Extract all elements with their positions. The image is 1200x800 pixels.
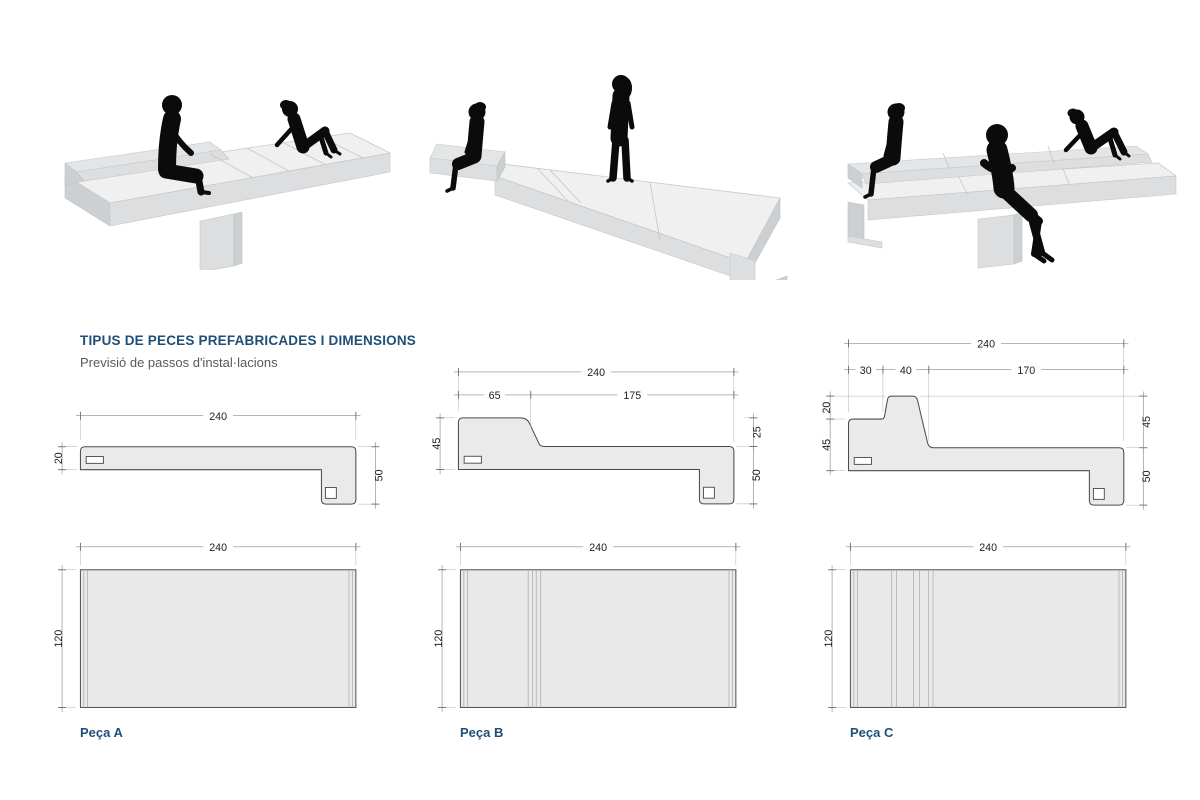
dim-label: 50 [1141, 470, 1153, 482]
dim-label: 45 [431, 438, 443, 450]
render-piece-a [50, 75, 400, 270]
section-profile [458, 418, 733, 504]
dim-label: 240 [589, 542, 607, 554]
dim-total-width: 240 [76, 409, 361, 440]
dim-label: 120 [433, 630, 445, 648]
plan-drawing-b: 240 120 [426, 533, 768, 719]
section-drawing-c: 240 30 40 170 20 45 [814, 325, 1156, 520]
render-piece-c [838, 68, 1190, 296]
person-standing-silhouette [608, 75, 632, 181]
page-subtitle: Previsió de passos d'instal·lacions [80, 355, 416, 370]
section-profile [80, 447, 355, 504]
dim-label: 120 [823, 630, 835, 648]
section-drawing-b: 240 65 175 45 25 50 [424, 358, 766, 519]
dim-plan-depth: 120 [53, 565, 76, 712]
dim-end-height: 50 [358, 442, 385, 509]
dim-label: 120 [53, 630, 65, 648]
dim-end-height: 50 [736, 447, 763, 509]
dim-label: 240 [209, 542, 227, 554]
dim-label: 175 [623, 390, 641, 402]
dim-label: 240 [977, 338, 995, 350]
page-title: TIPUS DE PECES PREFABRICADES I DIMENSION… [80, 333, 416, 348]
dim-label: 170 [1017, 365, 1035, 377]
dim-end-height: 50 [1126, 448, 1153, 510]
dim-label: 25 [751, 426, 763, 438]
dim-back-height: 45 [821, 419, 845, 475]
plan-drawing-a: 240 120 [46, 533, 388, 719]
dim-seat-drop: 25 [736, 413, 763, 451]
dim-label: 30 [860, 365, 872, 377]
duct-slot [464, 456, 481, 463]
section-drawing-a: 240 20 50 [46, 403, 388, 518]
duct-hole [325, 487, 336, 498]
bench-3d-b [430, 144, 787, 280]
title-block: TIPUS DE PECES PREFABRICADES I DIMENSION… [80, 333, 416, 370]
dim-label: 20 [821, 402, 833, 414]
dim-label: 240 [979, 542, 997, 554]
dim-label: 65 [489, 390, 501, 402]
dim-label: 45 [1141, 416, 1153, 428]
dim-plan-width: 240 [76, 540, 361, 565]
dim-plan-depth: 120 [433, 565, 456, 712]
render-piece-b [425, 48, 797, 280]
plan-outline [80, 570, 355, 708]
dim-label: 45 [821, 439, 833, 451]
dim-right-drop: 45 [920, 392, 1154, 453]
dim-plan-width: 240 [456, 540, 741, 565]
piece-label-c: Peça C [850, 725, 893, 740]
dim-plan-width: 240 [846, 540, 1131, 565]
dim-plan-depth: 120 [823, 565, 846, 712]
sheet: TIPUS DE PECES PREFABRICADES I DIMENSION… [0, 0, 1200, 800]
dim-seat-thickness: 20 [53, 442, 77, 474]
plan-drawing-c: 240 120 [816, 533, 1158, 719]
plan-outline [460, 570, 735, 708]
dim-back-height: 45 [431, 413, 455, 474]
piece-label-a: Peça A [80, 725, 123, 740]
section-profile [849, 396, 1124, 505]
duct-slot [86, 456, 103, 463]
duct-hole [1093, 488, 1104, 499]
dim-label: 240 [209, 411, 227, 423]
dim-label: 50 [373, 469, 385, 481]
duct-slot [854, 457, 871, 464]
dim-label: 40 [900, 365, 912, 377]
duct-hole [703, 487, 714, 498]
piece-label-b: Peça B [460, 725, 503, 740]
dim-label: 50 [751, 469, 763, 481]
dim-label: 240 [587, 367, 605, 379]
dim-label: 20 [53, 452, 65, 464]
